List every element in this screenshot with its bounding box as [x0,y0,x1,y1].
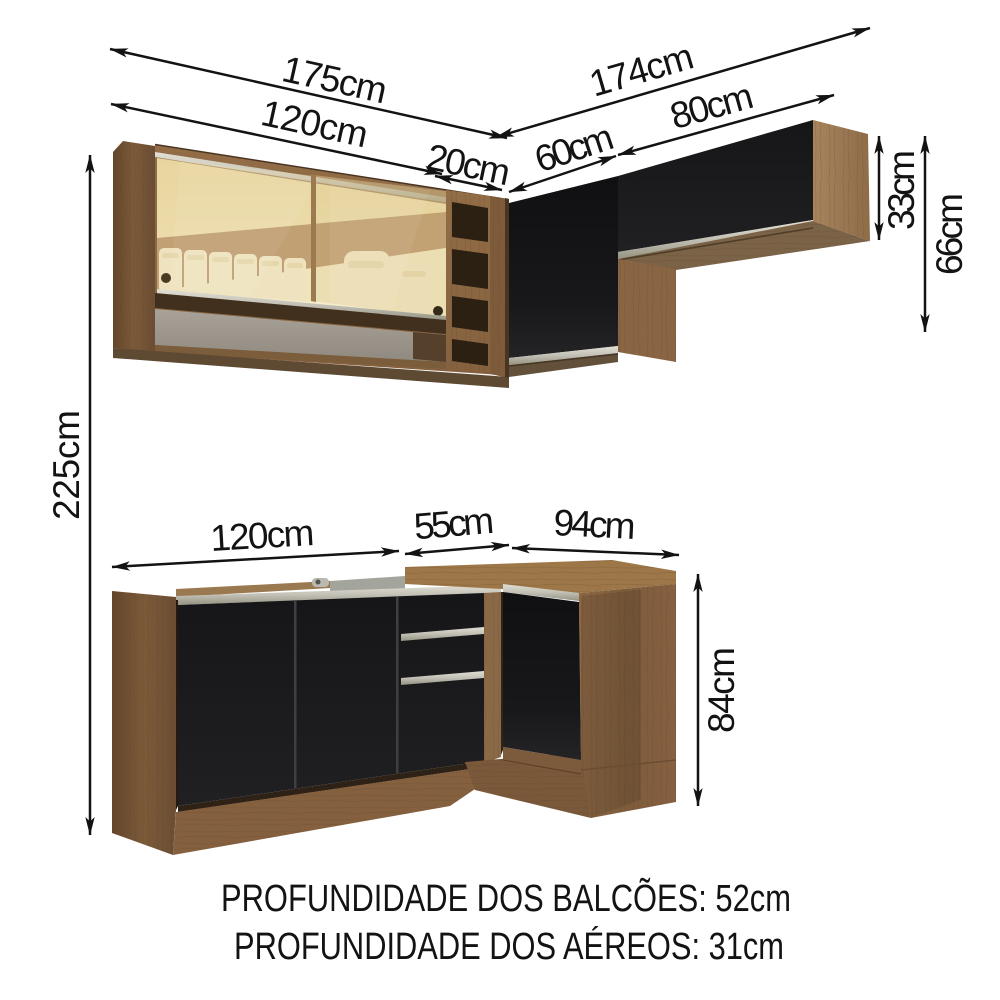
svg-text:33cm: 33cm [881,150,922,230]
svg-text:225cm: 225cm [46,410,87,520]
svg-text:PROFUNDIDADE DOS AÉREOS: 31cm: PROFUNDIDADE DOS AÉREOS: 31cm [234,925,784,968]
svg-text:120cm: 120cm [209,512,315,559]
svg-text:PROFUNDIDADE DOS BALCÕES: 52cm: PROFUNDIDADE DOS BALCÕES: 52cm [221,876,791,920]
svg-text:84cm: 84cm [701,647,742,733]
svg-text:94cm: 94cm [553,502,637,547]
svg-text:66cm: 66cm [929,193,970,275]
svg-text:55cm: 55cm [412,500,495,548]
